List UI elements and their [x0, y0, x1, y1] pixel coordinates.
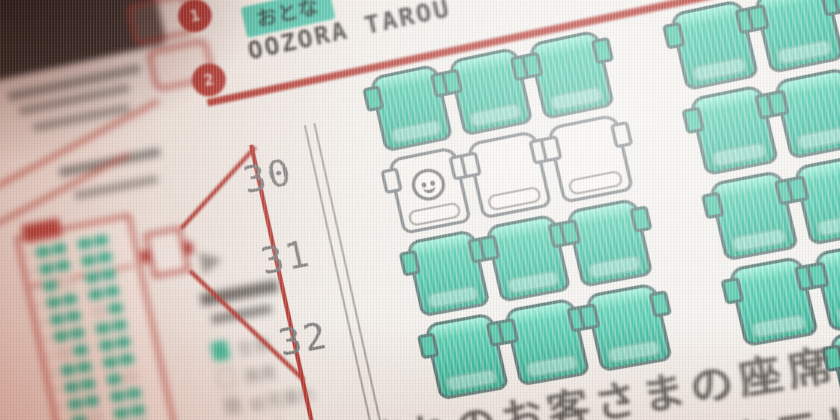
mini-row-mark [58, 405, 63, 408]
mini-row-mark [55, 388, 60, 391]
mini-seat [95, 322, 111, 335]
mini-seat [84, 271, 100, 284]
mini-seat [126, 387, 142, 400]
seat-available[interactable] [484, 213, 571, 302]
screen-surface: 空席満席幼児連れ 1 OOZORA おとな 2 OOZORA TAROU 303… [0, 0, 840, 420]
mini-seat [129, 404, 145, 417]
legend-white-seat-icon [216, 367, 237, 389]
seat-available[interactable] [447, 46, 533, 136]
mini-seat [80, 378, 96, 391]
mini-seat [102, 356, 118, 369]
mini-seat [73, 344, 89, 357]
mini-seat [97, 251, 113, 264]
mini-seat [49, 313, 65, 326]
mini-row-mark [30, 270, 35, 273]
mini-seat [104, 285, 120, 298]
mini-seat [83, 395, 99, 408]
mini-seat [42, 279, 58, 292]
mini-seat [46, 296, 62, 309]
mini-seat [99, 339, 115, 352]
mini-seat [93, 234, 109, 247]
mini-seat [106, 373, 122, 386]
direction-arrow-icon [199, 248, 224, 274]
seat-available[interactable] [405, 229, 490, 318]
mini-seat [87, 412, 103, 420]
mini-row-mark [44, 338, 49, 341]
mini-row-mark [51, 371, 56, 374]
seat-occupied [546, 113, 634, 204]
mini-row-mark [48, 354, 53, 357]
seat-occupied [466, 130, 552, 220]
photographed-terminal-screen: 空席満席幼児連れ 1 OOZORA おとな 2 OOZORA TAROU 303… [0, 0, 840, 420]
mini-seat [113, 407, 129, 420]
mini-seat [111, 319, 127, 332]
mini-seat [69, 327, 85, 340]
mini-seat [107, 302, 123, 315]
mini-seat [77, 237, 93, 250]
mini-seat [57, 347, 73, 360]
mini-seat [65, 310, 81, 323]
mini-seat [35, 246, 51, 259]
mini-row-mark [33, 287, 38, 290]
mini-row-mark [40, 321, 45, 324]
mini-seat [53, 330, 69, 343]
mini-seat [76, 361, 92, 374]
mini-row-mark [26, 253, 31, 256]
mini-seat [91, 305, 107, 318]
mini-seat [55, 259, 71, 272]
mini-seat [58, 276, 74, 289]
mini-seat [39, 262, 55, 275]
legend-green-seat-icon [210, 340, 231, 362]
mini-seat [115, 336, 131, 349]
mini-seat [81, 254, 97, 267]
selection-handle-left[interactable] [140, 250, 151, 264]
mini-seat [110, 390, 126, 403]
mini-seat [100, 268, 116, 281]
mini-seat [118, 353, 134, 366]
mini-seat [62, 293, 78, 306]
seat-available[interactable] [527, 29, 615, 120]
mini-row-mark [37, 304, 42, 307]
mini-seat [64, 381, 80, 394]
mini-seat [51, 242, 67, 255]
mini-seat [122, 370, 138, 383]
seat-infant-occupied [387, 146, 472, 235]
mini-seat [88, 288, 104, 301]
mini-seat [71, 415, 87, 420]
mini-seat [67, 398, 83, 411]
mini-seat [60, 364, 76, 377]
seat-available[interactable] [369, 63, 454, 152]
legend-infant-seat-icon [222, 394, 243, 416]
